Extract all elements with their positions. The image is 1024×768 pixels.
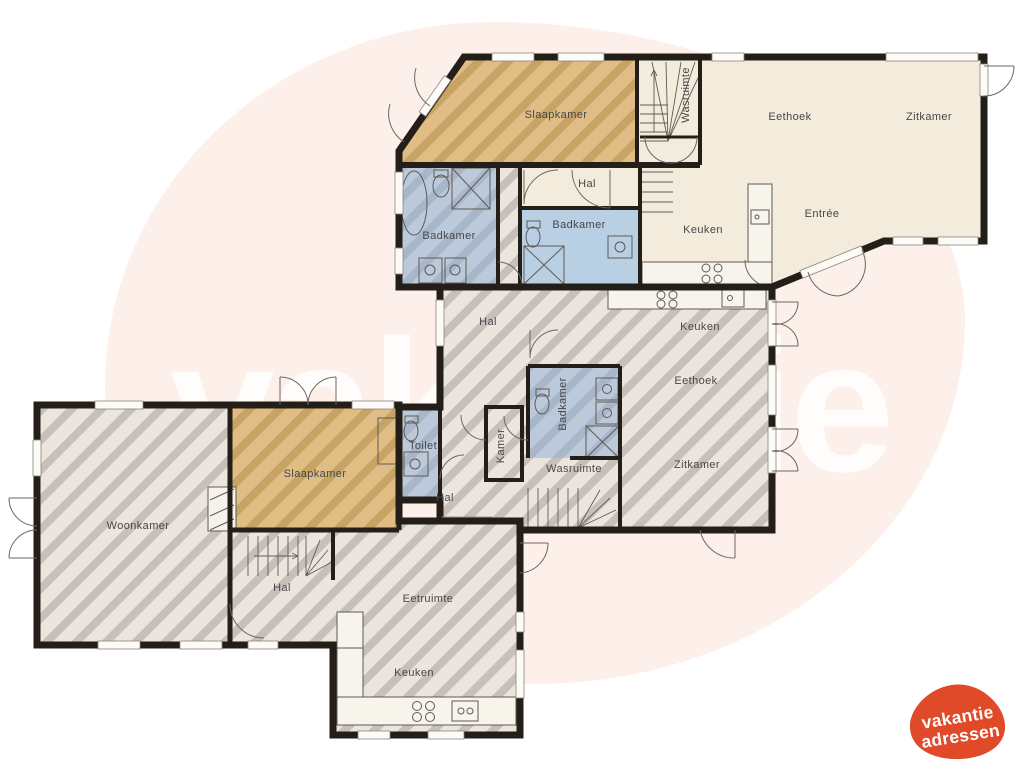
room-label-top-wasruimte: Wasruimte <box>680 67 692 123</box>
vakantieadressen-logo: vakantie adressen <box>901 680 1017 764</box>
middle-building <box>399 287 798 558</box>
room-label-mid-hal-lower: Hal <box>436 492 454 504</box>
room-label-bottom-woonkamer: Woonkamer <box>107 520 170 532</box>
room-label-bottom-slaapkamer: Slaapkamer <box>284 468 347 480</box>
room-label-top-slaapkamer: Slaapkamer <box>525 109 588 121</box>
room-label-top-entree: Entrée <box>805 208 840 220</box>
top-building <box>389 53 1014 296</box>
room-label-mid-wasruimte: Wasruimte <box>546 463 602 475</box>
floor-plan: Slaapkamer Wasruimte Hal Badkamer Badkam… <box>0 0 1024 768</box>
room-label-mid-eethoek: Eethoek <box>674 375 717 387</box>
room-label-top-zitkamer: Zitkamer <box>906 111 952 123</box>
room-label-mid-badkamer: Badkamer <box>557 377 569 430</box>
room-label-bottom-keuken: Keuken <box>394 667 434 679</box>
room-label-mid-zitkamer: Zitkamer <box>674 459 720 471</box>
room-label-top-badkamer-left: Badkamer <box>422 230 475 242</box>
room-label-mid-hal-upper: Hal <box>479 316 497 328</box>
floorplan-page: vakantie <box>0 0 1024 768</box>
room-top-slaapkamer <box>401 60 637 165</box>
room-label-top-eethoek: Eethoek <box>768 111 811 123</box>
room-label-top-keuken: Keuken <box>683 224 723 236</box>
corridor-strip <box>498 168 520 287</box>
room-label-mid-keuken: Keuken <box>680 321 720 333</box>
room-label-top-hal: Hal <box>578 178 596 190</box>
room-label-top-badkamer-blue: Badkamer <box>552 219 605 231</box>
room-mid-badkamer <box>528 366 620 458</box>
room-label-mid-kamer: Kamer <box>495 429 507 463</box>
room-label-mid-toilet: Toilet <box>409 440 437 452</box>
room-label-bottom-hal: Hal <box>273 582 291 594</box>
room-label-bottom-eetruimte: Eetruimte <box>403 593 454 605</box>
